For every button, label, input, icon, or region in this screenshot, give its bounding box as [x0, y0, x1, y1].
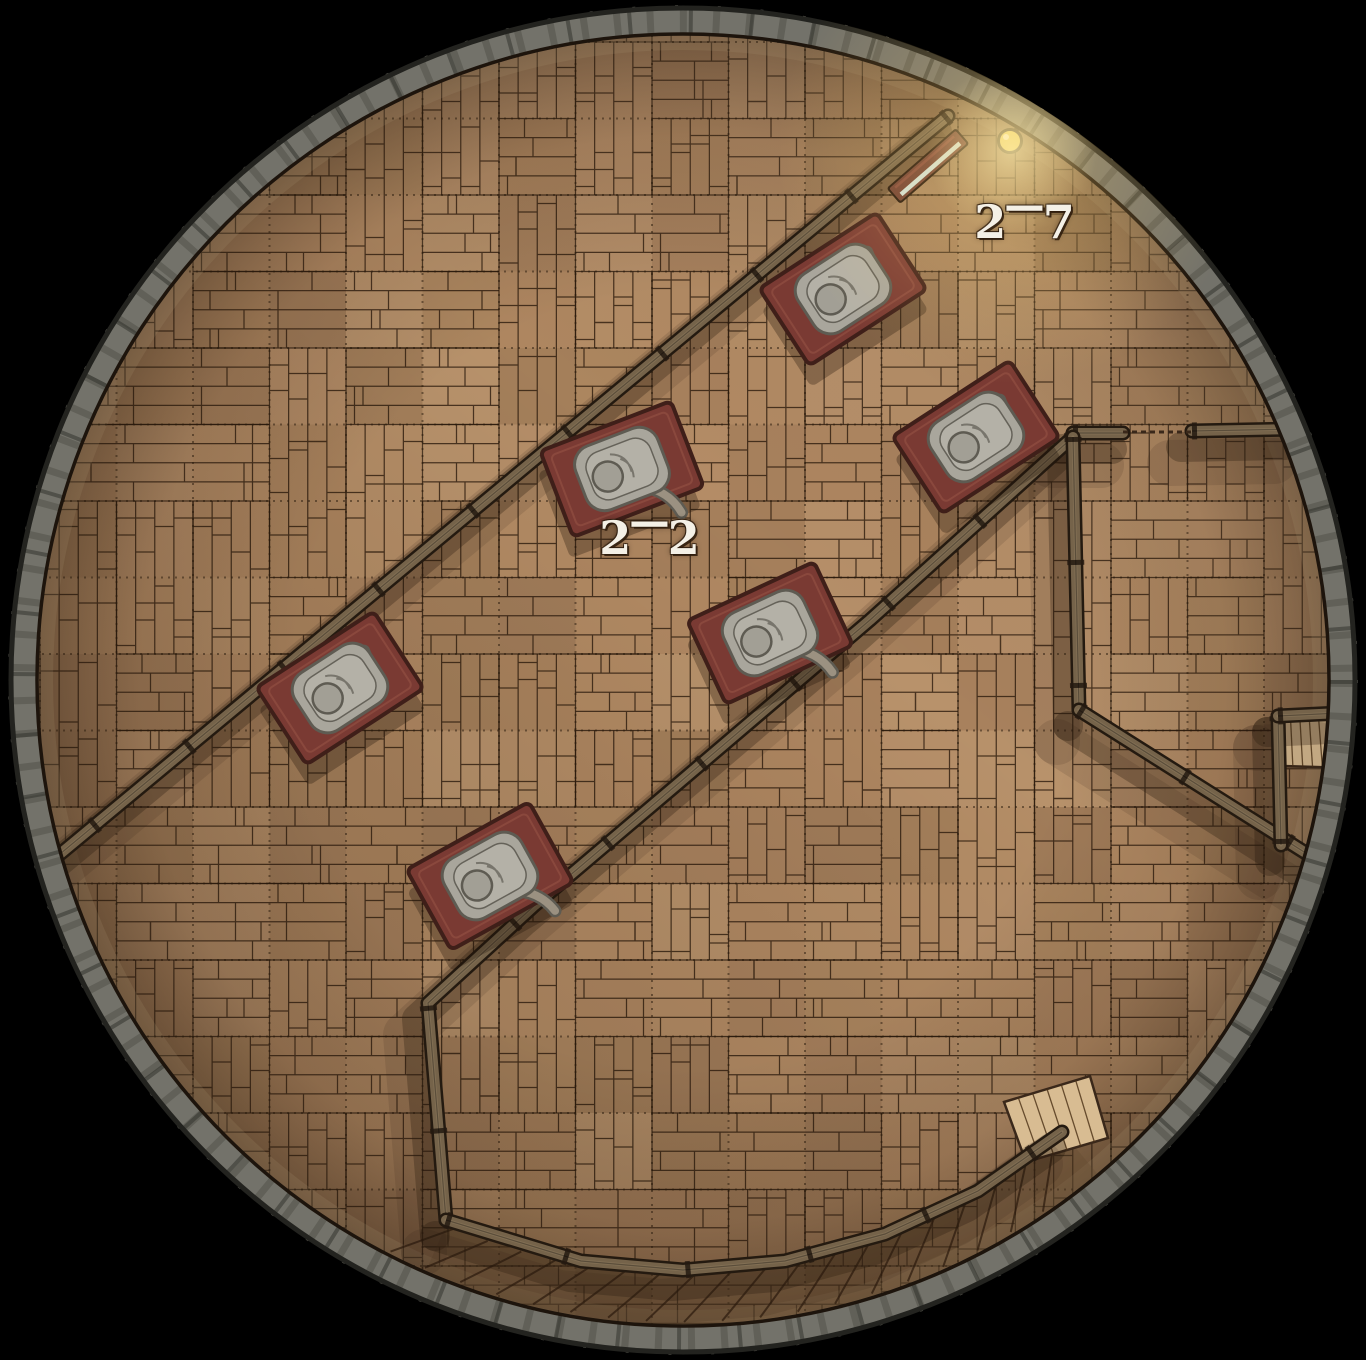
wall-east-wall-vertical — [1073, 437, 1079, 710]
label-dash: − — [625, 499, 674, 545]
label-dash: − — [1000, 183, 1049, 229]
room-label-2-2: 2−2 — [599, 515, 701, 561]
room-label-2-7: 2−7 — [974, 199, 1076, 245]
map-canvas — [0, 0, 1366, 1360]
battle-map: 2−7 2−2 — [0, 0, 1366, 1360]
wall-alcove-wall-vertical — [1278, 716, 1281, 845]
